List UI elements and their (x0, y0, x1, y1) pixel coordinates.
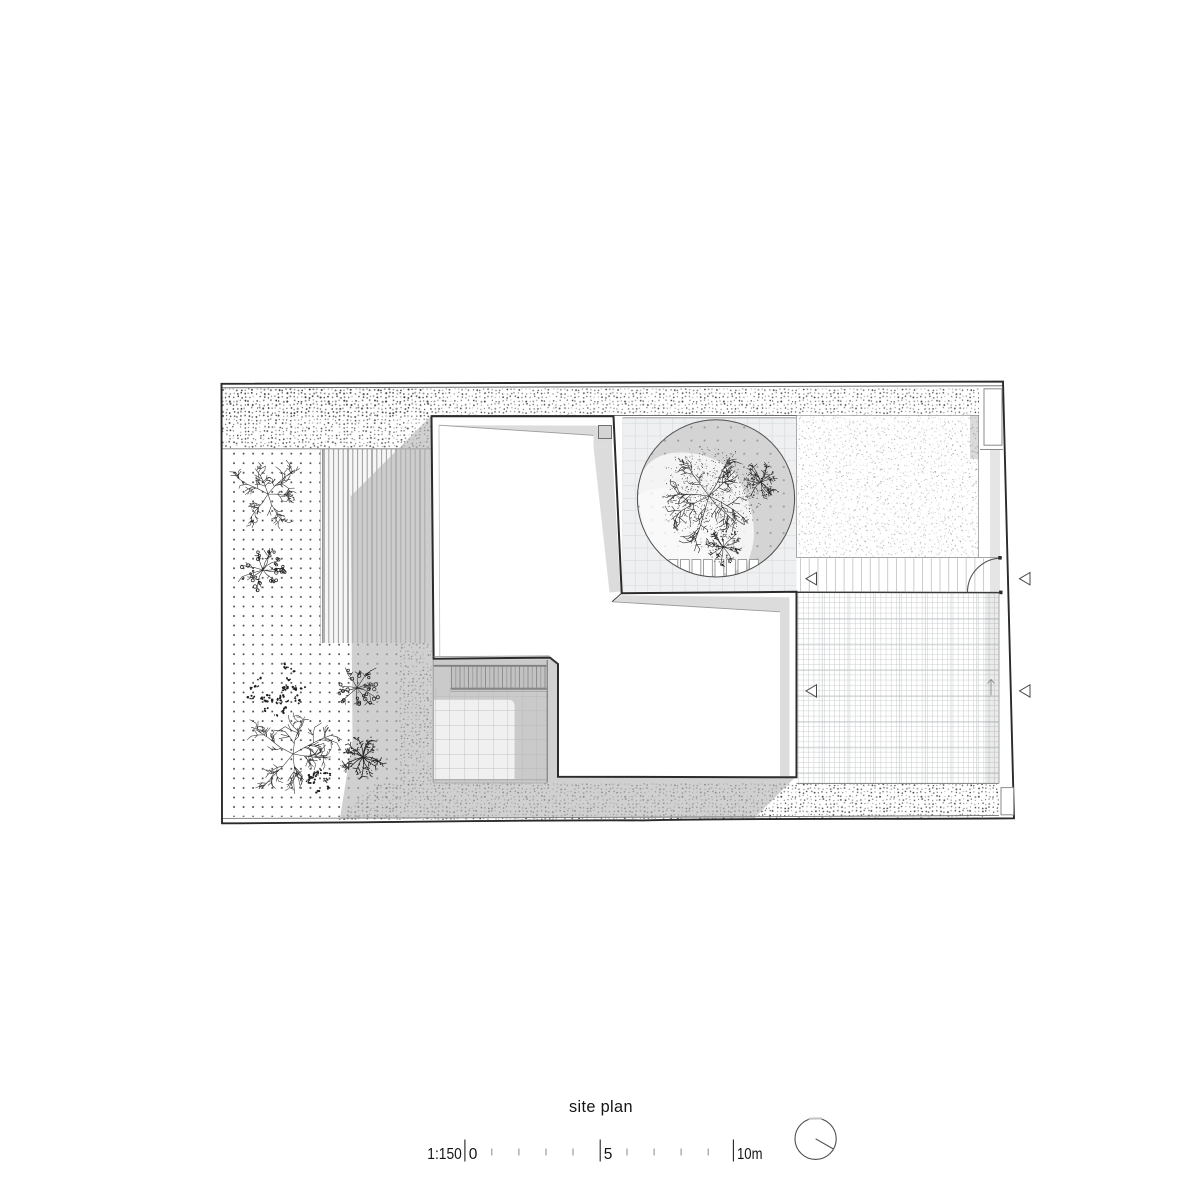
svg-text:site plan: site plan (569, 1098, 633, 1116)
svg-text:5: 5 (604, 1146, 613, 1163)
svg-text:1:150: 1:150 (427, 1146, 462, 1163)
svg-text:10m: 10m (737, 1146, 763, 1163)
svg-text:0: 0 (469, 1146, 478, 1163)
